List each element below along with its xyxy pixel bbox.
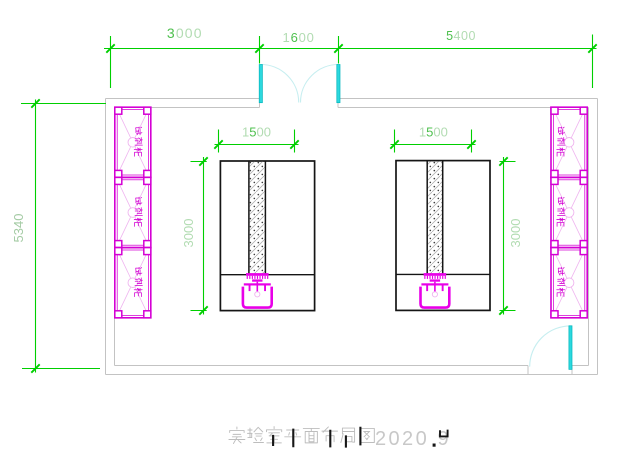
svg-text:5340: 5340	[11, 214, 26, 243]
svg-text:3000: 3000	[508, 219, 523, 248]
svg-text:1500: 1500	[419, 125, 448, 140]
svg-text:1500: 1500	[242, 125, 271, 140]
svg-text:3000: 3000	[167, 25, 203, 41]
svg-text:3000: 3000	[181, 219, 196, 248]
svg-text:5400: 5400	[446, 29, 476, 43]
svg-text:1600: 1600	[283, 30, 315, 45]
svg-text:2020: 2020	[375, 428, 429, 450]
